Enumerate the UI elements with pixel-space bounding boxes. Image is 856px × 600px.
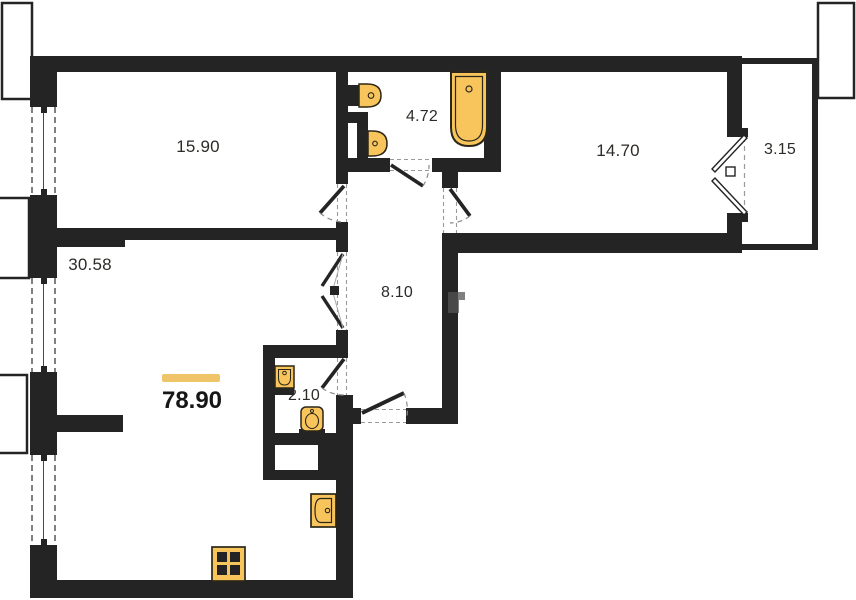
- wall-central-d: [336, 395, 353, 598]
- wall-bath-duct-h: [348, 112, 368, 123]
- wall-top: [33, 56, 740, 72]
- wall-balcony-top: [742, 58, 818, 64]
- wall-central-b: [336, 222, 348, 252]
- wall-hall-right-top: [442, 172, 458, 188]
- door-handle: [330, 286, 339, 295]
- room-label-bathroom: 4.72: [406, 108, 438, 126]
- wall-hall-bottom-right: [406, 408, 458, 424]
- door-wc: [322, 358, 347, 395]
- wall-left-pier-2: [30, 195, 57, 278]
- room-label-balcony: 3.15: [764, 141, 796, 159]
- window-1: [32, 107, 55, 195]
- balcony-door-handle: [726, 167, 735, 176]
- stove-icon: [212, 547, 245, 581]
- room-label-living-kitchen: 30.58: [68, 255, 112, 275]
- toilet-icon: [348, 84, 381, 107]
- room-label-bedroom: 15.90: [176, 137, 220, 157]
- sink-icon: [368, 131, 387, 156]
- door-living-double: [322, 252, 347, 330]
- walls: [30, 56, 818, 598]
- door-balcony: [712, 128, 748, 222]
- wall-wc-top: [263, 345, 348, 358]
- wc-toilet-icon: [299, 407, 325, 445]
- wall-left-pier-3: [30, 372, 57, 455]
- total-area-label: 78.90: [162, 387, 222, 415]
- room-label-wc: 2.10: [288, 387, 320, 405]
- window-2: [32, 278, 55, 372]
- door-bedroom2: [444, 188, 471, 233]
- wc-niche: [275, 445, 318, 470]
- wall-balcony-right: [812, 58, 818, 250]
- wall-bedroom2-bottom: [442, 233, 742, 253]
- room-label-hallway: 8.10: [381, 284, 413, 302]
- wall-balcony-pier-top: [727, 56, 742, 137]
- floor-plan: 15.90 4.72 14.70 3.15 30.58 8.10 2.10 78…: [0, 0, 856, 600]
- external-box-top-left: [2, 3, 32, 99]
- external-box-left-2: [0, 198, 29, 278]
- wall-hall-bottom-left: [336, 408, 361, 424]
- windows: [32, 107, 55, 545]
- door-entry: [361, 393, 407, 423]
- kitchen-sink-icon: [311, 494, 336, 527]
- room-label-bedroom-2: 14.70: [596, 141, 640, 161]
- wall-stub-left: [30, 415, 123, 432]
- total-area-accent-bar: [162, 374, 220, 382]
- watermark-fragment: [448, 292, 465, 313]
- door-bedroom: [320, 184, 347, 222]
- wall-bedroom-living-step: [57, 240, 125, 247]
- wall-left-pier-1: [30, 56, 57, 107]
- door-bathroom: [390, 160, 432, 187]
- wall-balcony-bottom: [742, 244, 818, 250]
- wall-bottom: [30, 580, 353, 598]
- wall-bedroom-living: [57, 228, 336, 240]
- bathtub-icon: [451, 72, 487, 146]
- external-box-top-right: [818, 3, 854, 98]
- balcony-door-leaf-bottom: [712, 178, 747, 215]
- floor-plan-drawing: [0, 0, 856, 600]
- wall-hall-right: [442, 233, 458, 424]
- external-box-left-3: [0, 375, 27, 453]
- window-3: [32, 455, 55, 545]
- doors: [320, 128, 748, 423]
- wall-bath-duct-v: [357, 123, 368, 163]
